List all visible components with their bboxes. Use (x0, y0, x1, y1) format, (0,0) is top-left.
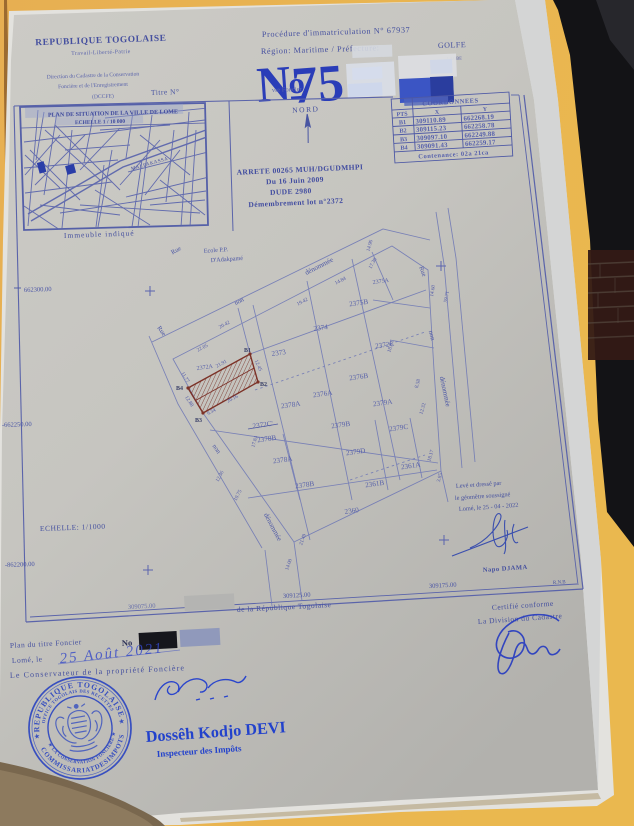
svg-text:B2: B2 (399, 127, 407, 134)
svg-text:B1: B1 (399, 119, 407, 126)
svg-text:Titre N°: Titre N° (151, 87, 180, 97)
svg-text:B1: B1 (244, 348, 251, 354)
svg-text:B3: B3 (400, 136, 408, 143)
svg-text:309125.00: 309125.00 (283, 592, 311, 600)
svg-text:GOLFE: GOLFE (438, 40, 467, 50)
svg-text:662300.00: 662300.00 (24, 286, 52, 294)
svg-text:-862200.00: -862200.00 (5, 561, 35, 569)
svg-text:309175.00: 309175.00 (429, 582, 457, 590)
svg-text:B3: B3 (195, 418, 202, 424)
svg-text:B2: B2 (260, 382, 267, 388)
svg-text:B4: B4 (400, 144, 408, 151)
svg-text:NORD: NORD (292, 104, 320, 114)
svg-text:B4: B4 (176, 386, 183, 392)
svg-text:-662250.00: -662250.00 (2, 421, 32, 429)
svg-text:309075.00: 309075.00 (128, 603, 156, 611)
svg-text:Lomé, le: Lomé, le (12, 654, 43, 665)
svg-text:PTS: PTS (396, 112, 408, 119)
svg-text:vre Foncier: vre Foncier (272, 86, 303, 94)
svg-text:(DCCFE): (DCCFE) (92, 93, 114, 101)
svg-text:DUDE 2980: DUDE 2980 (270, 186, 312, 197)
svg-text:R.N.B: R.N.B (553, 580, 567, 586)
